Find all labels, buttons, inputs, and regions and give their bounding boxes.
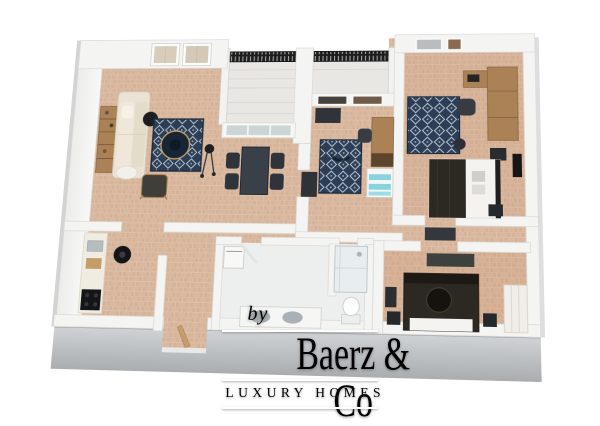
watermark-tagline: LUXURY HOMES <box>210 385 396 401</box>
bedroom2-top-wall-right <box>458 242 531 253</box>
bedroom1-nightstand <box>490 148 506 161</box>
laptop <box>467 74 479 81</box>
sofa <box>112 92 151 179</box>
bedroom2-nightstand-right <box>483 313 497 327</box>
bedroom1-bottom-wall-left <box>392 215 425 225</box>
hallway-doormat <box>425 227 456 240</box>
bedroom1-left-wall <box>392 46 404 226</box>
bedroom1-desk-chair <box>457 99 475 116</box>
bedroom1-topwall-window <box>416 39 442 50</box>
shower <box>334 246 368 293</box>
bedroom1-pouf <box>454 138 466 149</box>
bedroom2-left-wall <box>372 241 384 334</box>
bedroom2-dresser <box>385 287 397 308</box>
dining-chair <box>270 174 284 190</box>
armchair <box>140 175 169 200</box>
bedroom1-wardrobe-wood <box>487 67 518 140</box>
dining-chair <box>270 153 284 169</box>
kitchen-sink <box>87 241 103 252</box>
balcony-center-pier <box>293 48 314 144</box>
bedroom2-doormat <box>427 253 475 267</box>
watermark-rule-middle <box>222 379 378 381</box>
spine-wall-lower <box>296 197 309 234</box>
teal-dresser <box>367 168 394 197</box>
watermark-rule-bottom <box>222 407 378 409</box>
living-bottom-wall-left <box>64 221 122 231</box>
dining-table <box>240 147 269 195</box>
dining-chair <box>226 153 240 169</box>
wall-art-black <box>512 154 522 177</box>
desk-chair <box>358 129 372 143</box>
bottom-wall-left <box>53 314 164 328</box>
watermark-prefix: by <box>228 303 288 326</box>
dining-chair <box>225 173 239 189</box>
living-bottom-wall-right <box>164 222 296 233</box>
toilet <box>341 297 360 324</box>
bedroom1-rug <box>407 97 459 154</box>
cooktop <box>80 289 101 310</box>
middleroom-window-pane-1 <box>318 96 347 104</box>
bedroom2-nightstand-left <box>387 311 401 325</box>
bedroom1-topwall-art <box>448 39 462 50</box>
floor-plan-render: by Baerz & Co LUXURY HOMES <box>0 0 600 426</box>
bedroom1-nightstand-2 <box>488 204 503 216</box>
living-balcony-glass-doors <box>225 125 291 136</box>
spine-wall-upper <box>298 143 311 170</box>
bathroom-top-wall-a <box>216 237 242 245</box>
middleroom-window-pane-2 <box>353 96 383 104</box>
bedroom2-bed <box>403 273 479 332</box>
nursery-rug <box>319 140 362 194</box>
watermark-brand: Baerz & Co <box>274 331 432 425</box>
cutting-board <box>85 258 101 269</box>
bathroom-top-wall-b <box>261 237 339 246</box>
sideboard-dark-top <box>371 153 393 166</box>
washing-machine <box>223 246 244 268</box>
spine-door-mat <box>301 172 318 197</box>
doormat-dark <box>315 108 341 123</box>
bedroom2-wardrobe <box>504 285 528 333</box>
floor-pouf <box>116 166 138 179</box>
